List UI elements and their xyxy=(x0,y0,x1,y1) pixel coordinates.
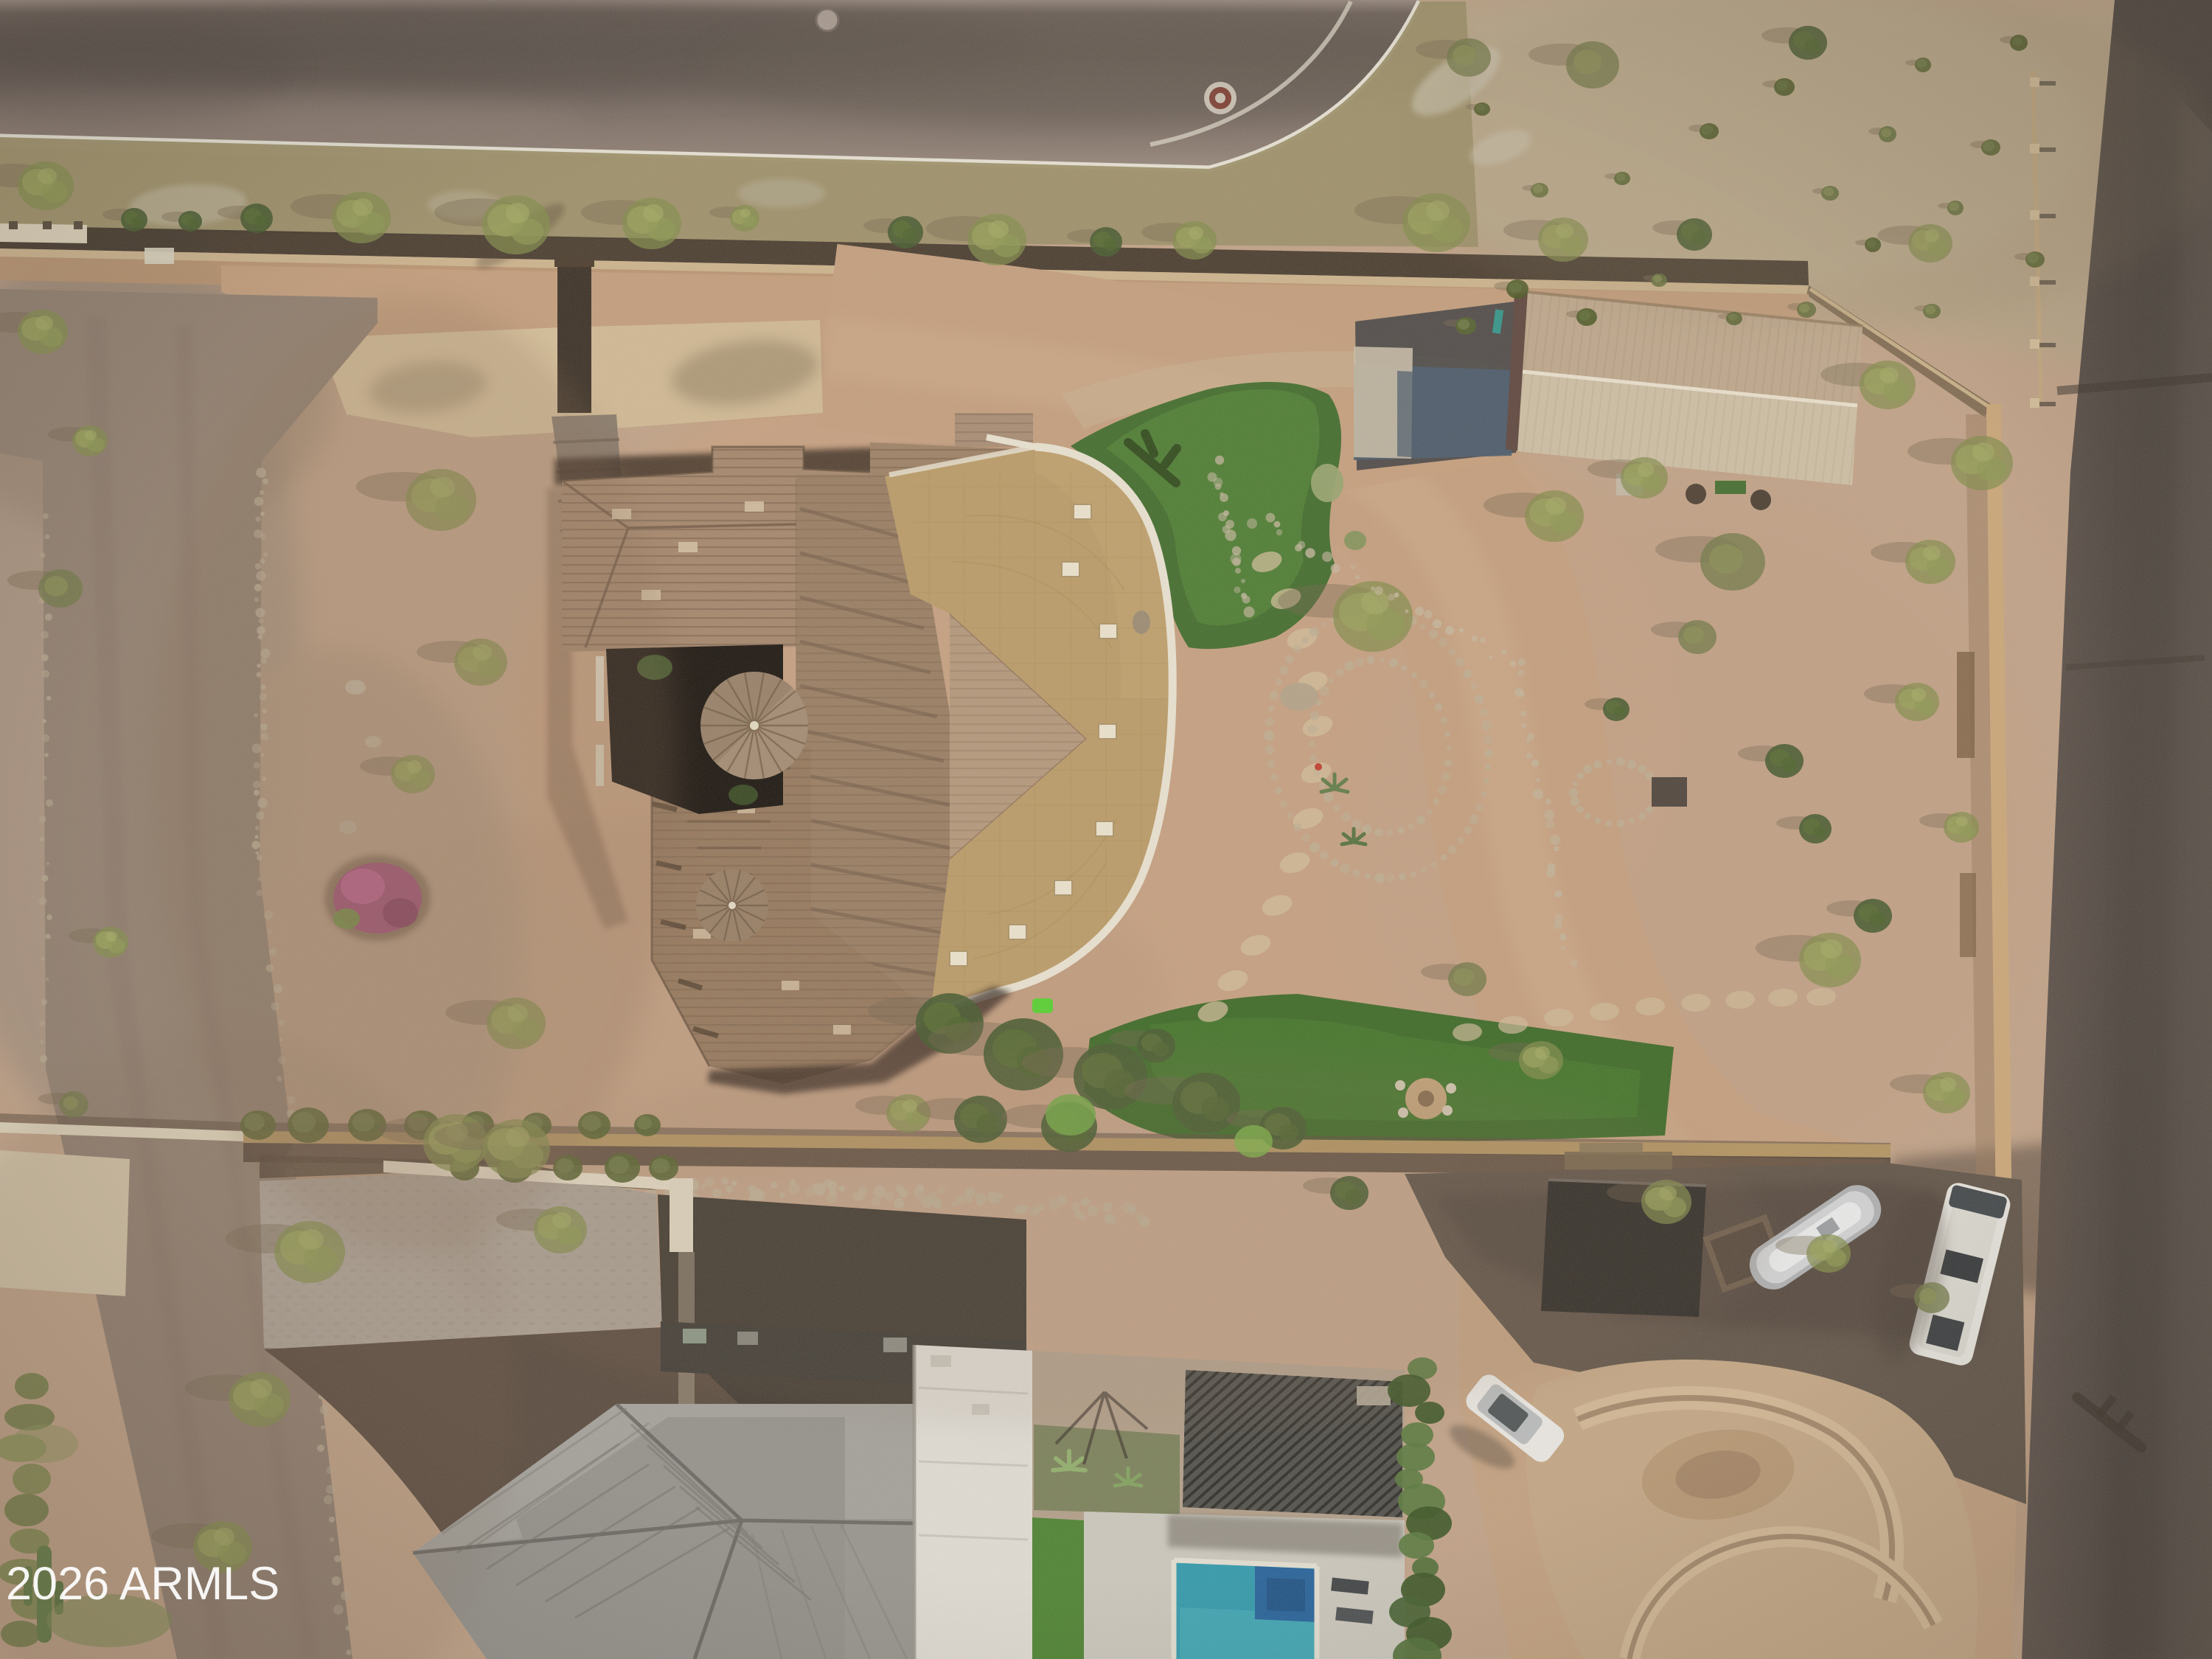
svg-text:2026 ARMLS: 2026 ARMLS xyxy=(6,1558,279,1610)
